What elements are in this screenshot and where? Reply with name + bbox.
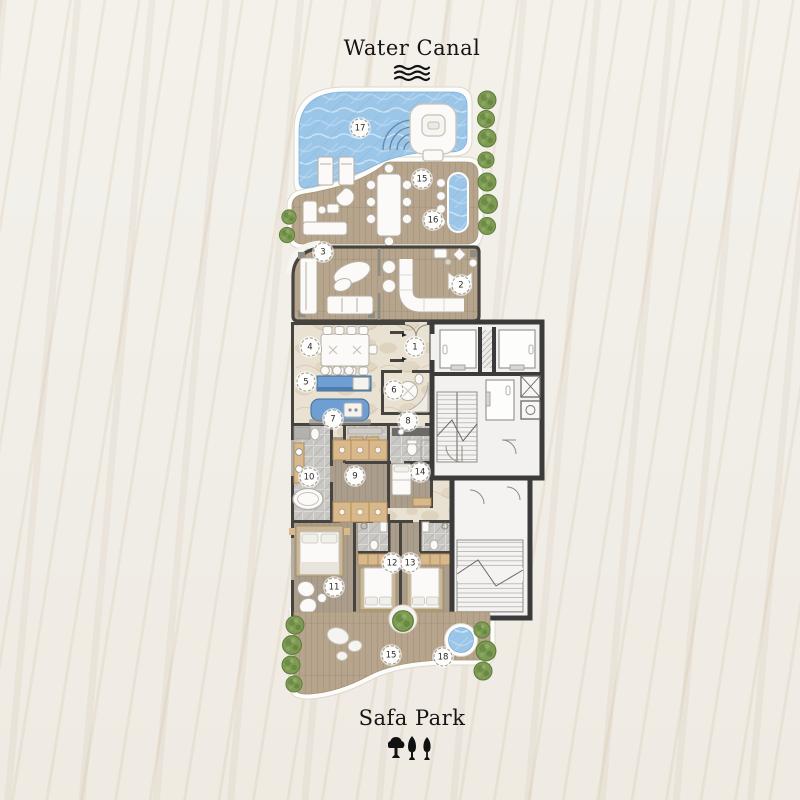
safa-park-label: Safa Park bbox=[359, 706, 466, 730]
room-badge-powder-room: 6 bbox=[385, 381, 404, 400]
elevator-a bbox=[440, 330, 476, 370]
room-badge-kitchen-island: 7 bbox=[324, 410, 343, 429]
room-badge-laundry: 8 bbox=[399, 412, 418, 431]
room-badge-entrance-foyer: 1 bbox=[406, 338, 425, 357]
elevator-b bbox=[499, 330, 535, 370]
terrace-sofa bbox=[300, 258, 317, 314]
room-badge-lower-terrace: 15 bbox=[382, 646, 401, 665]
service-elevator bbox=[486, 380, 514, 420]
duct-shaft bbox=[521, 376, 540, 419]
room-badge-upper-terrace: 15 bbox=[413, 170, 432, 189]
room-badge-water-feature: 16 bbox=[424, 211, 443, 230]
floor-plan bbox=[0, 0, 800, 800]
room-badge-maid-room: 14 bbox=[411, 463, 430, 482]
stairs-upper bbox=[437, 392, 477, 462]
room-badge-dining-area: 4 bbox=[301, 338, 320, 357]
room-badge-terrace-lounge: 3 bbox=[314, 243, 333, 262]
room-badge-plunge-pool: 18 bbox=[434, 648, 453, 667]
room-badge-kitchen-bar: 5 bbox=[297, 373, 316, 392]
stairs-lower bbox=[457, 540, 523, 612]
jacuzzi bbox=[410, 104, 456, 161]
room-badge-walk-in-closet: 9 bbox=[346, 467, 365, 486]
room-badge-bedroom-2: 12 bbox=[383, 554, 402, 573]
site-plan-page: Water Canal bbox=[0, 0, 800, 800]
room-badge-bedroom-3: 13 bbox=[401, 554, 420, 573]
room-badge-living-room: 2 bbox=[452, 276, 471, 295]
room-badge-master-bathroom: 10 bbox=[300, 468, 319, 487]
room-badge-master-bedroom: 11 bbox=[325, 578, 344, 597]
room-badge-swimming-pool: 17 bbox=[351, 119, 370, 138]
park-trees-icon bbox=[388, 736, 436, 760]
